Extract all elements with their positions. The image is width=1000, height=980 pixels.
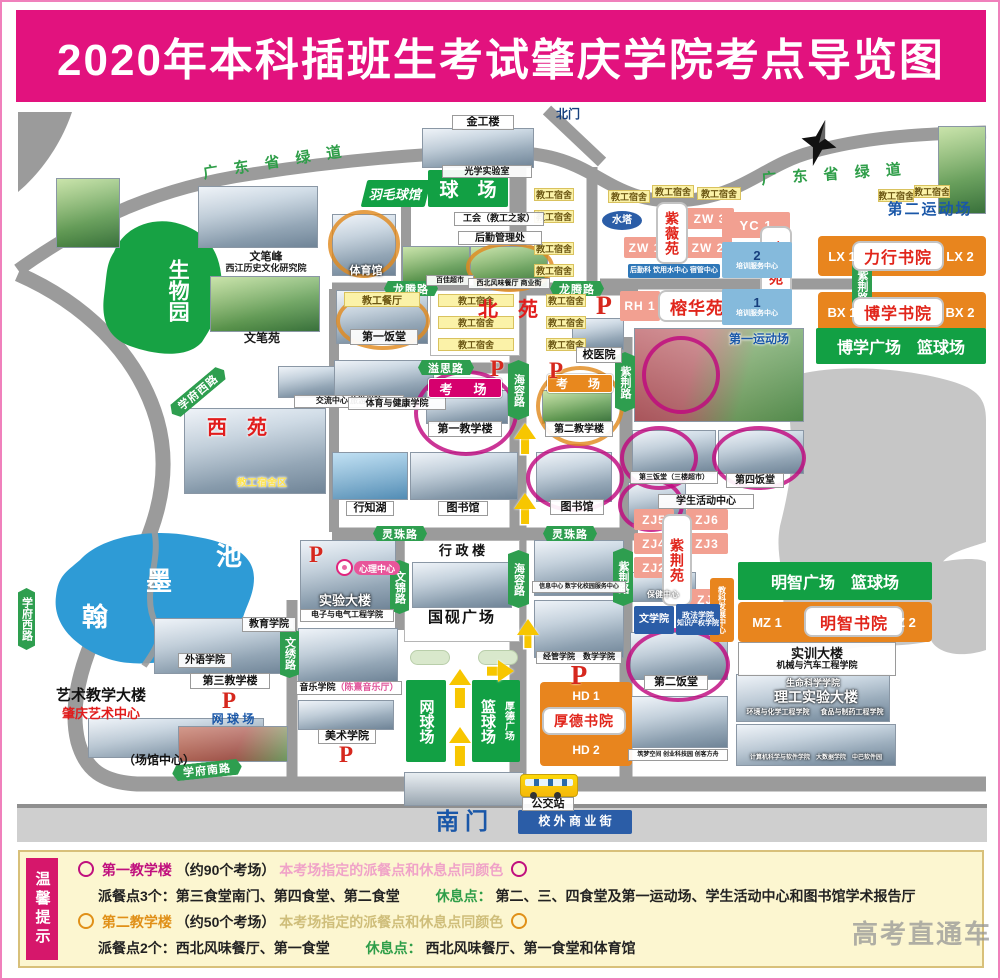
- ligong-lab-building: 理工实验大楼: [754, 688, 878, 705]
- label-student-center: 学生活动中心: [658, 494, 754, 509]
- tennis-court-label: 网 球 场: [198, 712, 268, 728]
- notice-rest-label-1: 休息点：: [436, 888, 492, 904]
- label-maker-space: 筑梦空间 创业科技园 创客方舟: [628, 749, 728, 761]
- notice-meal-1: 派餐点3个：第三食堂南门、第四食堂、第二食堂: [98, 888, 400, 904]
- notice-rest-label-2: 休息点：: [366, 940, 422, 956]
- dorm-lx1: LX 1: [820, 246, 864, 266]
- admin-building-label: 行 政 楼: [424, 543, 500, 560]
- parking-icon: P: [486, 356, 508, 382]
- wenbifeng-label: 文笔峰西江历史文化研究院: [212, 248, 320, 276]
- route-arrow-up: [446, 728, 474, 766]
- photo-wenbiyuan: [210, 276, 320, 332]
- notice-rest-2: 西北风味餐厅、第一食堂和体育馆: [425, 940, 635, 956]
- notice-panel: 温馨提示 第一教学楼 （约90个考场） 本考场指定的派餐点和休息点同颜色 派餐点…: [18, 850, 984, 968]
- notice-line-4: 派餐点2个：西北风味餐厅、第一食堂 休息点： 西北风味餐厅、第一食堂和体育馆: [74, 938, 976, 958]
- photo-admin-building: [412, 562, 512, 608]
- parking-icon: P: [592, 292, 616, 320]
- mingzhi-square: 明智广场 篮球场: [738, 562, 932, 600]
- notice-building-2: 第二教学楼: [102, 914, 172, 930]
- notice-meal-2: 派餐点2个：西北风味餐厅、第一食堂: [98, 940, 330, 956]
- lake-mo: 墨: [142, 564, 176, 600]
- staff-dorm-area: 教工宿舍区: [226, 475, 298, 488]
- lixing-college: 力行书院: [852, 241, 944, 271]
- notice-rooms-2: （约50个考场）: [176, 914, 276, 930]
- label-library-west: 图书馆: [438, 501, 488, 516]
- staff-dorm: 教工宿舍: [546, 294, 586, 307]
- dorm-mz2: MZ 2: [878, 612, 924, 632]
- label-elec-college: 电子与电气工程学院: [300, 609, 394, 622]
- notice-line-2: 派餐点3个：第三食堂南门、第四食堂、第二食堂 休息点： 第二、三、四食堂及第一运…: [74, 886, 976, 906]
- south-gate: 南门: [428, 806, 502, 836]
- training-center-1: 1培训服务中心: [722, 289, 792, 325]
- photo-xingzhi-lake: [332, 452, 408, 500]
- dorm-ziwei-yuan: 紫薇苑: [656, 202, 688, 264]
- route-arrow-up: [514, 494, 536, 524]
- road-label-zijing-south: 紫荆路: [613, 548, 633, 606]
- staff-dorm: 教工宿舍: [914, 185, 950, 198]
- photo-music-college: [298, 628, 398, 682]
- route-arrow-up: [518, 620, 538, 648]
- photo-exchange-center: [278, 366, 336, 398]
- label-supermarket: 百佳超市: [426, 275, 474, 286]
- photo-library-west: [410, 452, 518, 500]
- wenbiyuan-label: 文笔苑: [234, 331, 290, 346]
- sports-ground-2: 第二运动场: [876, 200, 984, 220]
- legend-circle-orange-icon: [511, 913, 527, 929]
- route-arrow-right: [487, 659, 513, 683]
- dorm-hd2: HD 2: [558, 742, 614, 758]
- zhaoqing-art-center: 肇庆艺术中心: [50, 706, 152, 722]
- parking-icon: P: [567, 660, 591, 690]
- bus-icon: [520, 774, 578, 797]
- legend-circle-magenta-icon: [78, 861, 94, 877]
- food-pharma-college: 食品与制药工程学院: [810, 707, 894, 717]
- label-bus-station: 公交站: [522, 797, 574, 811]
- label-canteen-4: 第四饭堂: [726, 473, 784, 488]
- staff-dorm: 教工宿舍: [534, 264, 574, 277]
- gymnasium-label: 体育馆: [338, 263, 394, 277]
- psych-center: 心理中心: [354, 561, 400, 575]
- road-label-hairong-south: 海容路: [508, 550, 529, 608]
- dorm-lx2: LX 2: [938, 246, 982, 266]
- greenway-label-east: 广 东 省 绿 道: [749, 156, 918, 190]
- sports-ground-1: 第一运动场: [718, 331, 800, 346]
- road-label-lingzhu-east: 灵珠路: [543, 526, 597, 541]
- literature-college: 文学院: [634, 606, 674, 634]
- dorm-zj6: ZJ6: [686, 509, 728, 530]
- lawn-oval: [410, 650, 450, 665]
- badminton-hall: 羽毛球馆: [361, 180, 432, 207]
- art-teaching-building: 艺术教学大楼: [42, 686, 160, 705]
- staff-dorm: 教工宿舍: [608, 190, 650, 203]
- label-teaching-3: 第三教学楼: [190, 673, 270, 689]
- law-college: 政法学院知识产权学院: [676, 604, 720, 635]
- shixun-building: 实训大楼机械与汽车工程学院: [738, 642, 896, 676]
- tennis-court-banner: 网球场: [406, 680, 446, 762]
- computer-college-label: 计算机科学与软件学院 大数据学院 中巴软件园: [738, 751, 894, 762]
- poster: 2020年本科插班生考试肇庆学院考点导览图 保健中心广 东 省 绿 道广 东 省…: [0, 0, 1000, 980]
- legend-circle-magenta-icon: [511, 861, 527, 877]
- lake-chi: 池: [212, 539, 246, 575]
- dorm-mz1: MZ 1: [744, 612, 790, 632]
- houde-college: 厚德书院: [542, 707, 626, 735]
- water-tower: 水塔: [602, 211, 642, 230]
- parking-icon: P: [305, 542, 327, 568]
- parking-icon: P: [218, 688, 240, 714]
- staff-dorm: 教工宿舍: [652, 185, 694, 198]
- map-elements-layer: 保健中心广 东 省 绿 道广 东 省 绿 道龙腾路龙腾路溢思路海容路海容路紫荆路…: [2, 2, 998, 978]
- guoyan-square: 国砚广场: [422, 608, 502, 628]
- label-library-east: 图书馆: [550, 499, 604, 515]
- notice-note-2: 本考场指定的派餐点和休息点同颜色: [279, 914, 503, 930]
- basketball-court-banner: 篮球场厚德广场: [472, 680, 520, 762]
- staff-dorm: 教工宿舍: [697, 187, 741, 200]
- route-arrow-up: [446, 670, 474, 708]
- road-label-lingzhu-west: 灵珠路: [373, 526, 427, 541]
- north-gate: 北门: [542, 108, 594, 122]
- staff-dorm: 教工宿舍: [534, 188, 574, 201]
- label-edu-college: 教育学院: [242, 617, 296, 632]
- label-union: 工会（教工之家）: [454, 212, 544, 226]
- photo-wenbifeng: [198, 186, 318, 248]
- commercial-street: 校 外 商 业 街: [518, 810, 632, 834]
- boxue-square: 博学广场 篮球场: [816, 328, 986, 364]
- psych-logo-icon: [336, 559, 353, 576]
- notice-building-1: 第一教学楼: [102, 862, 172, 878]
- photo-business-math: [534, 600, 624, 658]
- label-foreign-college: 外语学院: [178, 653, 232, 668]
- watermark: 高考直通车: [852, 914, 992, 951]
- label-sports-health: 体育与健康学院: [348, 397, 446, 410]
- boxue-college: 博学书院: [852, 297, 944, 327]
- xiyuan: 西 苑: [198, 412, 276, 438]
- exam-circle-sports-ground: [642, 336, 720, 414]
- photo-jingonglou: [422, 128, 534, 168]
- photo-maker-space: [630, 696, 728, 748]
- notice-rooms-1: （约90个考场）: [176, 862, 276, 878]
- label-xingzhi-lake: 行知湖: [346, 501, 394, 516]
- notice-tab: 温馨提示: [26, 858, 58, 960]
- road-label-wenxiu: 文绣路: [280, 628, 299, 678]
- legend-circle-orange-icon: [78, 913, 94, 929]
- label-canteen-1: 第一饭堂: [350, 329, 418, 345]
- label-teaching-1: 第一教学楼: [428, 421, 502, 437]
- dorm-bx2: BX 2: [938, 302, 982, 322]
- dorm-rh1: RH 1: [620, 291, 660, 321]
- parking-icon: P: [335, 742, 357, 768]
- bio-garden: 生物园: [162, 248, 192, 332]
- label-jingonglou: 金工楼: [452, 115, 514, 130]
- beiyuan: 北 苑: [470, 298, 546, 323]
- venue-center: （场馆中心）: [106, 752, 212, 769]
- label-logistics-office: 后勤管理处: [458, 231, 542, 245]
- road-label-xuefuxi-south: 学府西路: [18, 588, 35, 650]
- road-label-hairong-north: 海容路: [508, 360, 529, 420]
- env-chem-college: 环境与化学工程学院: [737, 707, 819, 717]
- road-label-yisi: 溢思路: [418, 360, 474, 375]
- dorm-zj3: ZJ3: [686, 533, 728, 554]
- logistics-bar: 后勤科 饮用水中心 宿管中心: [628, 264, 720, 278]
- staff-dorm: 教工宿舍: [438, 338, 514, 351]
- training-center-2: 2培训服务中心: [722, 242, 792, 278]
- label-hospital: 校医院: [576, 347, 622, 363]
- lab-building-label: 实验大楼: [308, 591, 382, 607]
- label-canteen-3: 第三饭堂（三楼超市）: [630, 471, 718, 484]
- label-teaching-2: 第二教学楼: [545, 421, 613, 437]
- label-optics-lab: 光学实验室: [442, 165, 532, 178]
- route-arrow-up: [514, 424, 536, 454]
- notice-line-3: 第二教学楼 （约50个考场） 本考场指定的派餐点和休息点同颜色: [74, 912, 976, 932]
- dorm-bx1: BX 1: [820, 302, 864, 322]
- label-info-center: 信息中心 数字化校园服务中心: [532, 581, 626, 593]
- notice-line-1: 第一教学楼 （约90个考场） 本考场指定的派餐点和休息点同颜色: [74, 860, 976, 880]
- photo-south-gate: [404, 772, 524, 806]
- photo-art-college: [298, 700, 394, 730]
- staff-restaurant: 教工餐厅: [344, 292, 420, 307]
- notice-rest-1: 第二、三、四食堂及第一运动场、学生活动中心和图书馆学术报告厅: [495, 888, 915, 904]
- label-northwest-restaurant: 西北风味餐厅 商业街: [468, 278, 550, 289]
- greenway-label-west: 广 东 省 绿 道: [199, 138, 351, 183]
- label-music-college: 音乐学院（陈熹音乐厅）: [296, 681, 402, 695]
- staff-dorm: 教工宿舍: [546, 316, 586, 329]
- parking-icon: P: [545, 358, 567, 384]
- lake-han: 翰: [78, 600, 112, 636]
- notice-note-1: 本考场指定的派餐点和休息点同颜色: [279, 862, 503, 878]
- photo-hill-trees: [56, 178, 120, 248]
- label-canteen-2: 第二饭堂: [644, 675, 708, 690]
